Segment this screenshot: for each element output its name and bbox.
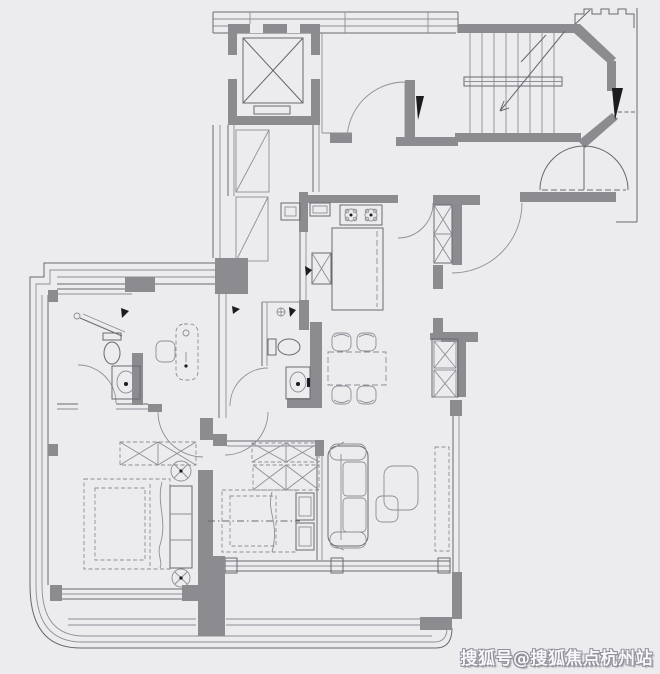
- stove-burner: [365, 209, 377, 221]
- bathroom-master: [74, 308, 140, 399]
- wardrobe: [253, 465, 319, 490]
- side-table: [376, 496, 398, 522]
- kitchen-island: [332, 228, 383, 310]
- exterior-windows-and-boundary: [30, 8, 637, 648]
- bedroom-master: [84, 442, 196, 587]
- plant-icon: [183, 330, 189, 336]
- elevator: [243, 38, 303, 114]
- stove-burner: [345, 209, 357, 221]
- floor-plan-page: { "watermark": { "text": "搜狐号@搜狐焦点杭州站" }…: [0, 0, 660, 674]
- dining-table: [328, 352, 386, 385]
- kitchen-stove: [340, 205, 382, 225]
- toilet-tank: [268, 339, 276, 355]
- desk: [176, 324, 198, 380]
- nightstand-lamp: [171, 461, 191, 481]
- sofa: [328, 442, 368, 550]
- coffee-table: [384, 466, 418, 510]
- living-room: [328, 442, 449, 551]
- headboard: [170, 486, 192, 568]
- toilet-bowl: [104, 342, 120, 364]
- floor-plan-drawing: [0, 0, 660, 674]
- watermark: 搜狐号@搜狐焦点杭州站: [461, 644, 654, 669]
- master-bed: [84, 479, 192, 569]
- dining-set: [328, 333, 386, 404]
- dining-chair: [357, 386, 376, 404]
- toilet-bowl: [278, 339, 300, 355]
- nightstand-lamp: [172, 569, 190, 587]
- dining-chair: [332, 386, 351, 404]
- entry-door: [540, 146, 628, 190]
- kitchen: [305, 205, 452, 310]
- utility-shaft: [432, 339, 458, 397]
- faucet-dot: [124, 382, 128, 386]
- faucet-dot: [296, 382, 300, 386]
- dining-chair: [332, 333, 351, 351]
- shower-head: [74, 313, 80, 319]
- dining-chair: [357, 333, 376, 351]
- desk-nook: [156, 324, 198, 380]
- desk-chair: [156, 341, 175, 362]
- second-bed: [208, 490, 314, 552]
- bedroom-second: [208, 443, 319, 552]
- tv-cabinet: [435, 447, 449, 551]
